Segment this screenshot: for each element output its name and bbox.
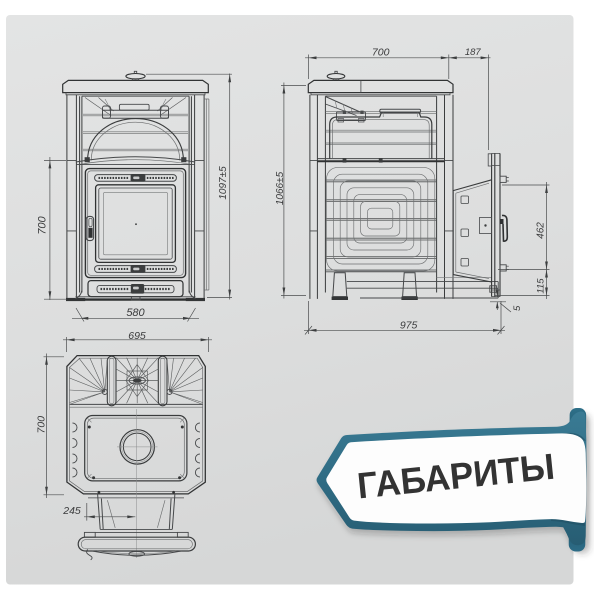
svg-text:975: 975 bbox=[400, 319, 418, 331]
svg-text:245: 245 bbox=[62, 505, 81, 517]
svg-text:695: 695 bbox=[128, 330, 146, 342]
svg-text:5: 5 bbox=[512, 305, 523, 311]
svg-text:462: 462 bbox=[536, 222, 547, 239]
svg-text:187: 187 bbox=[465, 47, 482, 58]
svg-text:1066±5: 1066±5 bbox=[275, 171, 286, 205]
svg-text:700: 700 bbox=[36, 416, 48, 434]
svg-text:580: 580 bbox=[126, 307, 145, 319]
svg-text:1097±5: 1097±5 bbox=[218, 166, 229, 200]
svg-text:115: 115 bbox=[536, 278, 547, 294]
svg-text:700: 700 bbox=[37, 215, 49, 234]
svg-text:700: 700 bbox=[372, 47, 390, 59]
